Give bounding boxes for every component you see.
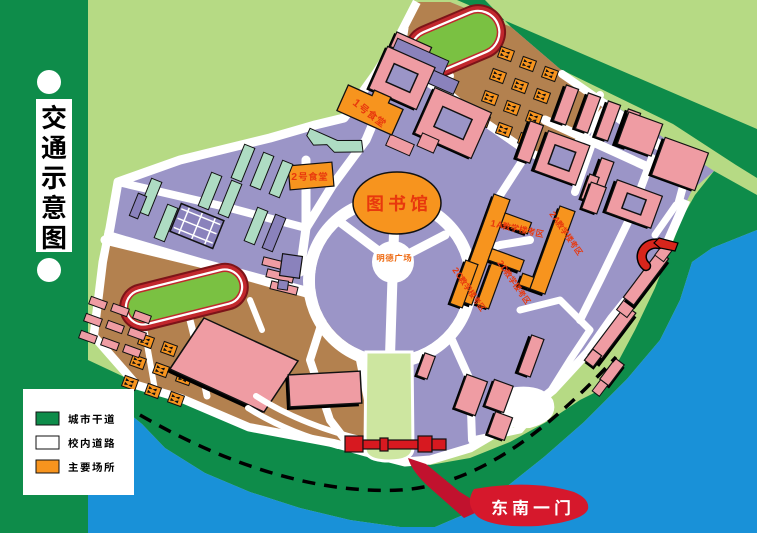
svg-text:2: 2 [291,171,297,183]
